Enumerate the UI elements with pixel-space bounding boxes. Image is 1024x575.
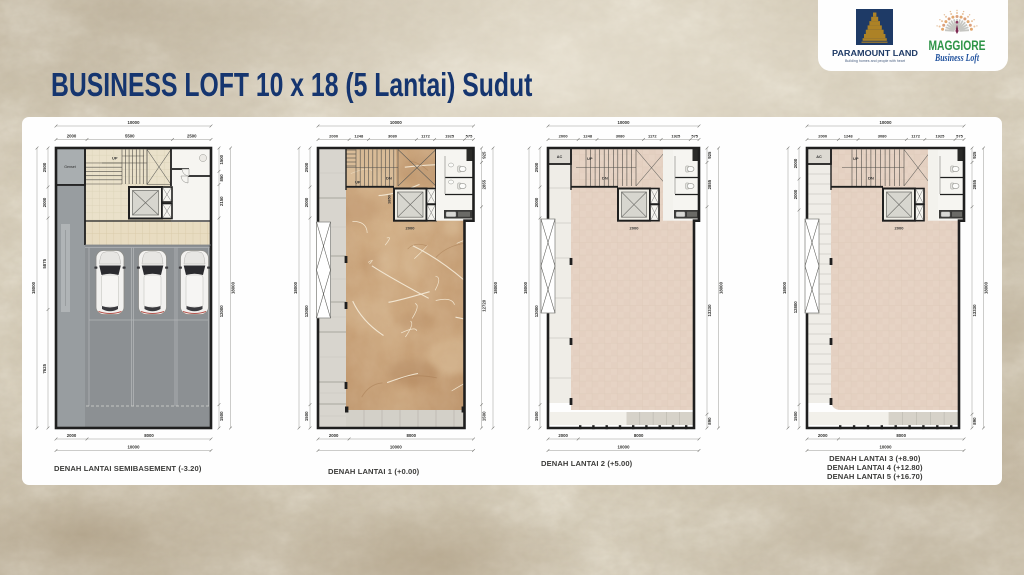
svg-text:7625: 7625: [42, 363, 47, 373]
svg-text:18000: 18000: [230, 281, 235, 294]
svg-text:UP: UP: [355, 180, 361, 185]
svg-text:2500: 2500: [304, 162, 309, 172]
svg-text:10000: 10000: [390, 445, 403, 450]
svg-text:12720: 12720: [481, 299, 486, 312]
svg-text:12800: 12800: [793, 301, 798, 314]
svg-text:2000: 2000: [67, 433, 77, 438]
svg-text:10000: 10000: [880, 120, 893, 125]
svg-text:2500: 2500: [42, 162, 47, 172]
svg-text:1850: 1850: [387, 194, 392, 204]
svg-text:Business Loft: Business Loft: [934, 53, 980, 64]
svg-text:DN: DN: [868, 176, 874, 181]
svg-text:2150: 2150: [219, 196, 224, 206]
svg-text:10000: 10000: [618, 120, 631, 125]
svg-text:8000: 8000: [407, 433, 417, 438]
svg-text:AC: AC: [557, 155, 563, 159]
svg-text:925: 925: [972, 151, 977, 159]
svg-text:18000: 18000: [493, 281, 498, 294]
svg-text:575: 575: [466, 133, 473, 138]
svg-text:2000: 2000: [329, 433, 339, 438]
svg-text:1248: 1248: [844, 133, 854, 138]
svg-text:1172: 1172: [911, 133, 920, 138]
svg-text:2000: 2000: [406, 226, 416, 231]
svg-text:5875: 5875: [42, 258, 47, 268]
svg-text:2000: 2000: [67, 133, 77, 138]
svg-text:1248: 1248: [354, 133, 364, 138]
svg-text:13330: 13330: [972, 304, 977, 317]
svg-text:2855: 2855: [707, 179, 712, 189]
svg-text:2000: 2000: [558, 433, 568, 438]
svg-text:1500: 1500: [219, 154, 224, 164]
svg-text:890: 890: [707, 417, 712, 425]
svg-text:1925: 1925: [671, 133, 681, 138]
svg-text:890: 890: [972, 417, 977, 425]
svg-text:13330: 13330: [707, 304, 712, 317]
svg-text:1500: 1500: [481, 411, 486, 421]
svg-text:10000: 10000: [128, 120, 141, 125]
svg-text:12000: 12000: [219, 305, 224, 318]
svg-text:575: 575: [691, 133, 698, 138]
svg-text:Genset: Genset: [64, 165, 76, 169]
svg-text:1500: 1500: [219, 411, 224, 421]
svg-text:2000: 2000: [793, 158, 798, 168]
svg-text:8000: 8000: [634, 433, 644, 438]
svg-text:18000: 18000: [983, 281, 988, 294]
svg-text:2000: 2000: [329, 133, 339, 138]
svg-text:PARAMOUNT LAND: PARAMOUNT LAND: [832, 48, 918, 58]
svg-text:DN: DN: [386, 176, 392, 181]
svg-text:850: 850: [219, 174, 224, 182]
svg-text:18000: 18000: [718, 281, 723, 294]
svg-text:Building homes and people with: Building homes and people with heart: [845, 59, 905, 63]
svg-text:10000: 10000: [128, 445, 141, 450]
svg-text:10000: 10000: [390, 120, 403, 125]
svg-text:18000: 18000: [782, 281, 787, 294]
svg-text:18000: 18000: [293, 281, 298, 294]
svg-text:2500: 2500: [187, 133, 197, 138]
svg-text:UP: UP: [112, 156, 118, 161]
svg-text:3080: 3080: [878, 133, 888, 138]
svg-text:10000: 10000: [880, 445, 893, 450]
svg-text:925: 925: [481, 151, 486, 159]
svg-text:UP: UP: [853, 156, 859, 161]
svg-text:2000: 2000: [895, 226, 905, 231]
svg-text:1172: 1172: [648, 133, 657, 138]
svg-text:1248: 1248: [583, 133, 593, 138]
svg-text:18000: 18000: [523, 281, 528, 294]
svg-text:1172: 1172: [421, 133, 430, 138]
svg-text:2000: 2000: [818, 433, 828, 438]
svg-text:10000: 10000: [618, 445, 631, 450]
svg-text:1500: 1500: [793, 411, 798, 421]
svg-text:2000: 2000: [534, 197, 539, 207]
svg-text:8000: 8000: [144, 433, 154, 438]
svg-text:575: 575: [956, 133, 963, 138]
svg-text:12000: 12000: [304, 305, 309, 318]
svg-text:DN: DN: [602, 176, 608, 181]
svg-text:925: 925: [707, 151, 712, 159]
svg-text:2000: 2000: [818, 133, 828, 138]
svg-text:5500: 5500: [125, 133, 135, 138]
svg-text:1925: 1925: [935, 133, 945, 138]
svg-text:8000: 8000: [896, 433, 906, 438]
svg-text:12000: 12000: [534, 305, 539, 318]
svg-text:2000: 2000: [630, 226, 640, 231]
svg-text:1925: 1925: [445, 133, 455, 138]
svg-text:2855: 2855: [481, 179, 486, 189]
svg-text:2000: 2000: [42, 197, 47, 207]
svg-text:3080: 3080: [616, 133, 626, 138]
svg-text:2500: 2500: [534, 162, 539, 172]
svg-text:1500: 1500: [304, 411, 309, 421]
svg-text:UP: UP: [587, 156, 593, 161]
svg-text:1500: 1500: [534, 411, 539, 421]
svg-text:2000: 2000: [559, 133, 569, 138]
svg-text:18000: 18000: [31, 281, 36, 294]
svg-text:MAGGIORE: MAGGIORE: [929, 38, 986, 53]
svg-text:3080: 3080: [388, 133, 398, 138]
svg-text:AC: AC: [816, 155, 822, 159]
svg-text:2855: 2855: [972, 179, 977, 189]
svg-text:2000: 2000: [304, 197, 309, 207]
svg-text:2000: 2000: [793, 189, 798, 199]
